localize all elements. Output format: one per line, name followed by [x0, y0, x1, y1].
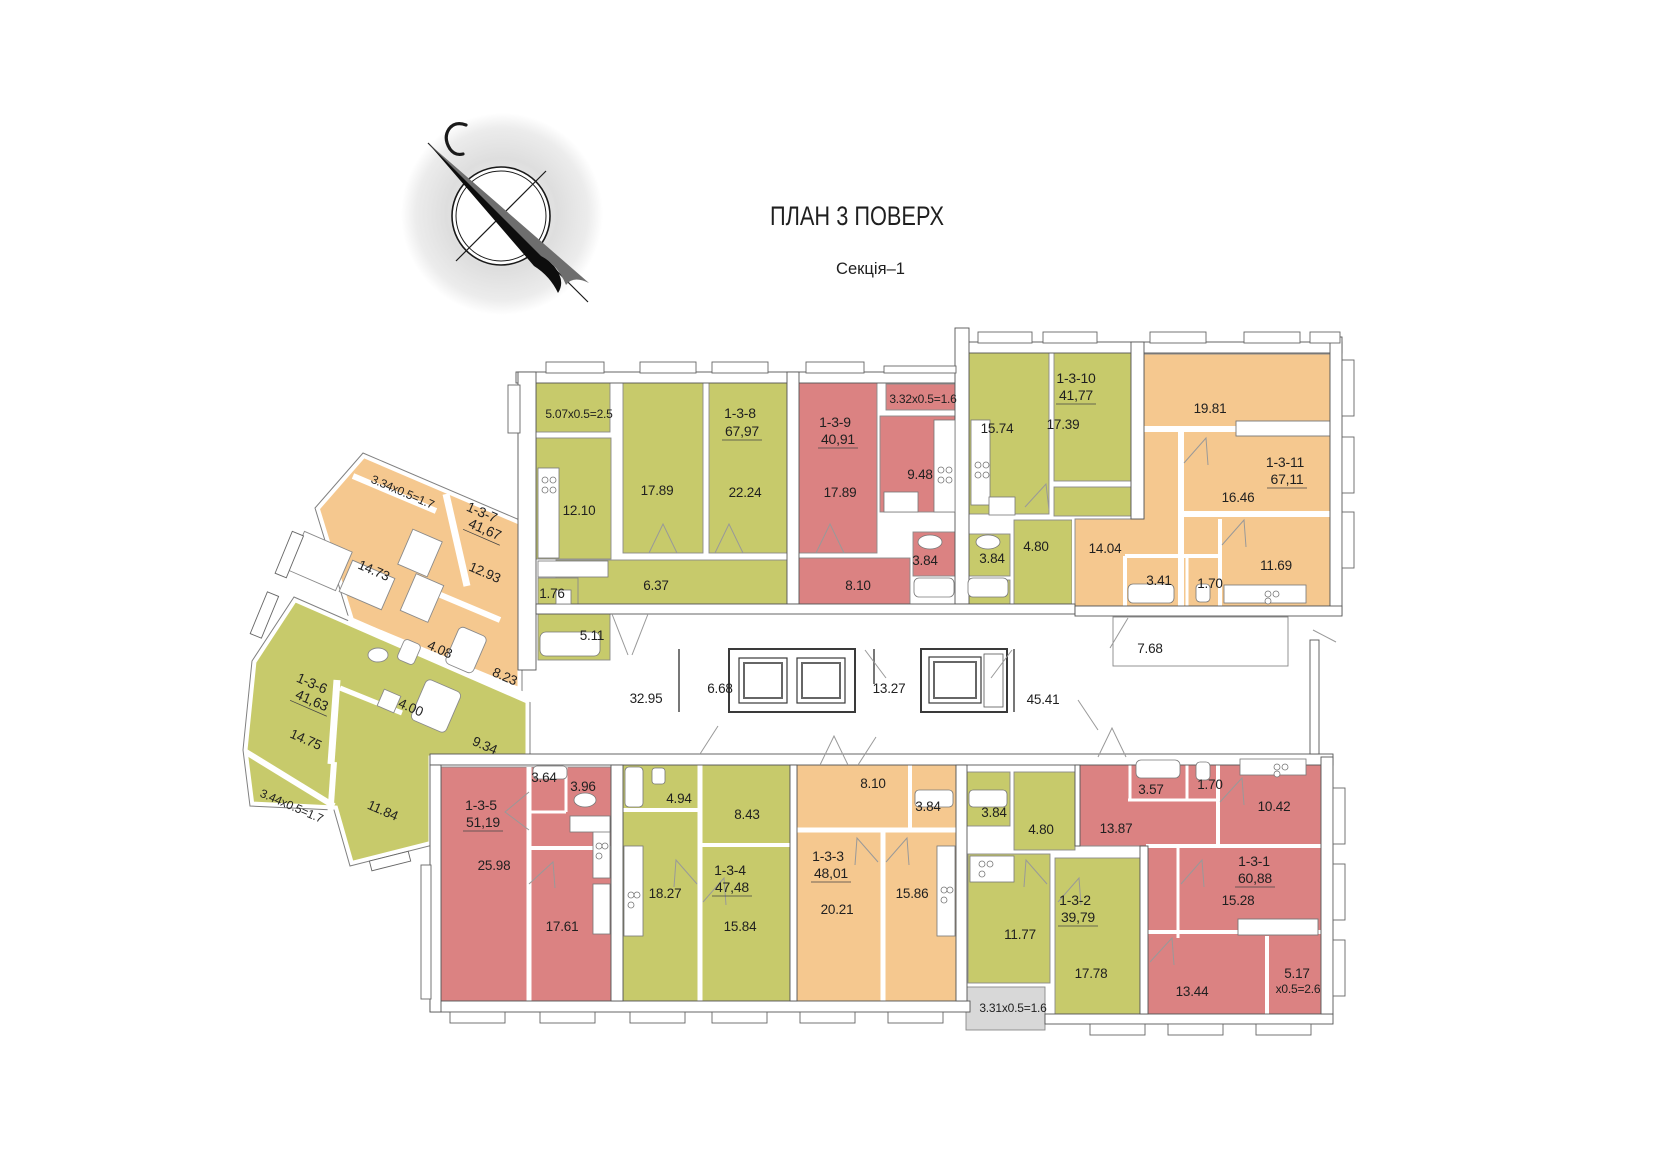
svg-text:1-3-3: 1-3-3	[812, 848, 844, 864]
svg-text:11.69: 11.69	[1260, 558, 1292, 573]
svg-text:6.37: 6.37	[643, 578, 668, 593]
svg-text:8.10: 8.10	[860, 776, 885, 791]
svg-text:60,88: 60,88	[1238, 870, 1272, 886]
svg-text:20.21: 20.21	[821, 902, 854, 917]
svg-text:8.10: 8.10	[845, 578, 870, 593]
svg-text:17.89: 17.89	[641, 483, 674, 498]
svg-text:14.04: 14.04	[1089, 541, 1122, 556]
svg-text:10.42: 10.42	[1258, 799, 1291, 814]
svg-text:13.44: 13.44	[1176, 984, 1209, 999]
svg-text:25.98: 25.98	[478, 858, 511, 873]
svg-text:3.32х0.5=1.6: 3.32х0.5=1.6	[889, 392, 957, 406]
svg-text:18.27: 18.27	[649, 886, 682, 901]
svg-text:5.11: 5.11	[580, 628, 604, 643]
svg-text:48,01: 48,01	[814, 865, 848, 881]
svg-text:3.84: 3.84	[979, 551, 1005, 566]
svg-text:12.10: 12.10	[563, 503, 596, 518]
svg-text:19.81: 19.81	[1194, 401, 1227, 416]
svg-text:4.80: 4.80	[1028, 822, 1053, 837]
svg-text:1-3-10: 1-3-10	[1056, 370, 1096, 386]
svg-text:39,79: 39,79	[1061, 909, 1095, 925]
svg-text:Секція–1: Секція–1	[836, 260, 905, 278]
svg-text:5.17: 5.17	[1284, 966, 1309, 981]
svg-text:5.07х0.5=2.5: 5.07х0.5=2.5	[545, 407, 613, 421]
svg-text:4.80: 4.80	[1023, 539, 1048, 554]
svg-text:16.46: 16.46	[1222, 490, 1255, 505]
svg-text:1-3-8: 1-3-8	[724, 405, 756, 421]
svg-text:15.86: 15.86	[896, 886, 929, 901]
svg-text:7.68: 7.68	[1137, 641, 1162, 656]
svg-text:47,48: 47,48	[715, 879, 749, 895]
svg-text:17.39: 17.39	[1047, 417, 1080, 432]
svg-text:3.64: 3.64	[531, 770, 557, 785]
svg-text:6.68: 6.68	[707, 681, 732, 696]
svg-text:51,19: 51,19	[466, 814, 500, 830]
svg-text:13.27: 13.27	[873, 681, 906, 696]
svg-text:1.76: 1.76	[539, 586, 564, 601]
svg-text:1-3-1: 1-3-1	[1238, 853, 1270, 869]
svg-text:1.70: 1.70	[1197, 576, 1222, 591]
svg-text:1-3-5: 1-3-5	[465, 797, 497, 813]
svg-text:45.41: 45.41	[1027, 692, 1060, 707]
svg-text:3.57: 3.57	[1138, 782, 1163, 797]
svg-text:17.61: 17.61	[546, 919, 579, 934]
svg-text:1-3-9: 1-3-9	[819, 414, 851, 430]
svg-text:15.28: 15.28	[1222, 893, 1255, 908]
svg-text:9.48: 9.48	[907, 467, 932, 482]
svg-text:3.96: 3.96	[570, 779, 595, 794]
svg-text:15.74: 15.74	[981, 421, 1014, 436]
svg-text:15.84: 15.84	[724, 919, 757, 934]
svg-text:3.31х0.5=1.6: 3.31х0.5=1.6	[979, 1001, 1047, 1015]
svg-text:17.89: 17.89	[824, 485, 857, 500]
svg-text:67,97: 67,97	[725, 423, 759, 439]
svg-text:3.84: 3.84	[981, 805, 1007, 820]
svg-text:41,77: 41,77	[1059, 387, 1093, 403]
svg-text:3.84: 3.84	[912, 553, 938, 568]
svg-text:3.41: 3.41	[1146, 573, 1171, 588]
svg-text:1-3-4: 1-3-4	[714, 862, 746, 878]
svg-text:22.24: 22.24	[729, 485, 762, 500]
svg-text:1.70: 1.70	[1197, 777, 1222, 792]
svg-text:40,91: 40,91	[821, 431, 855, 447]
svg-text:17.78: 17.78	[1075, 966, 1108, 981]
svg-text:1-3-2: 1-3-2	[1059, 892, 1091, 908]
svg-text:13.87: 13.87	[1100, 821, 1133, 836]
svg-text:3.84: 3.84	[915, 799, 941, 814]
svg-text:32.95: 32.95	[630, 691, 663, 706]
svg-text:11.77: 11.77	[1004, 927, 1036, 942]
svg-text:4.94: 4.94	[666, 791, 692, 806]
svg-text:8.43: 8.43	[734, 807, 759, 822]
svg-text:67,11: 67,11	[1271, 471, 1304, 487]
svg-text:х0.5=2.6: х0.5=2.6	[1276, 982, 1321, 996]
svg-text:1-3-11: 1-3-11	[1266, 454, 1305, 470]
svg-text:ПЛАН 3 ПОВЕРХ: ПЛАН 3 ПОВЕРХ	[770, 201, 944, 231]
